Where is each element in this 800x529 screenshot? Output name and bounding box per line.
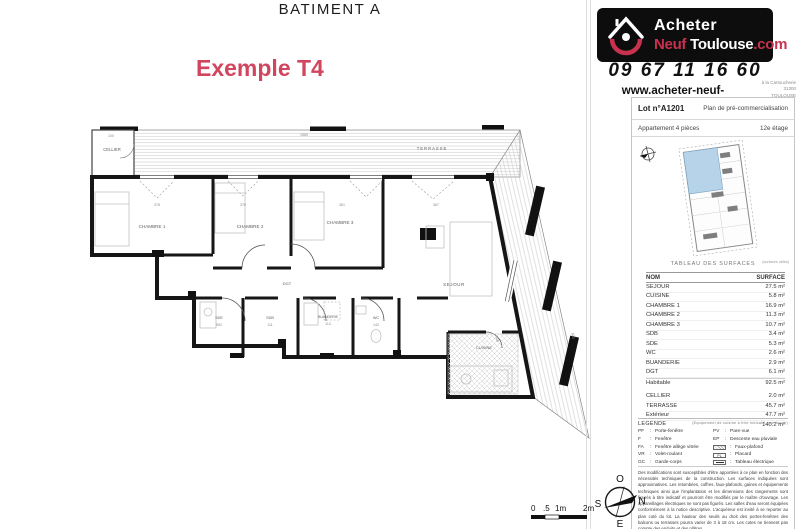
lot-header-row: Lot n°A1201 Plan de pré-commercialisatio…	[632, 98, 794, 120]
phone-number: 09 67 11 16 60	[594, 60, 776, 82]
apartment-type: Appartement 4 pièces	[638, 125, 699, 132]
swatch-electric-icon	[713, 460, 726, 465]
scale-label-1m: 1m	[555, 504, 566, 513]
example-label: Exemple T4	[196, 55, 324, 82]
table-row: CHAMBRE 310.7 m²	[646, 321, 785, 331]
brand-logo: Acheter NeufToulouse.com	[597, 8, 773, 62]
logo-line2: NeufToulouse.com	[654, 36, 787, 53]
compass-rose: O N S E	[591, 473, 649, 529]
legend-item: VR:Volet-roulant	[638, 451, 713, 459]
dim-sde: 552	[216, 323, 222, 327]
floor-plan: CELLIER TERRASSE CHAMBRE 1 CHAMBRE 2 CHA…	[82, 106, 602, 506]
room-label-wc: WC	[373, 316, 380, 320]
dim-sdb: 111	[267, 323, 272, 327]
table-header: NOM SURFACE	[646, 272, 785, 283]
compass-letter-e: E	[617, 519, 624, 529]
exterior-row: CELLIER2.0 m²	[646, 393, 785, 403]
lot-panel: Lot n°A1201 Plan de pré-commercialisatio…	[631, 97, 795, 529]
legend-item: FA:Fenêtre allège vitrée	[638, 444, 713, 452]
dim-cellier-w: 100	[108, 134, 114, 138]
table-row: CHAMBRE 116.9 m²	[646, 302, 785, 312]
compass-letter-s: S	[595, 499, 602, 510]
surface-table: NOM SURFACE SEJOUR27.5 m² CUISINE5.8 m² …	[646, 272, 785, 430]
room-label-buanderie: BUANDERIE	[318, 315, 339, 319]
logo-toulouse-text: Toulouse	[690, 36, 753, 53]
dim-win2: 370	[240, 203, 246, 207]
legend-right-column: PV:Pare-vue EP:Descente eau pluviale :Fa…	[713, 428, 788, 467]
separator-line	[586, 0, 587, 529]
apartment-row: Appartement 4 pièces 12e étage	[632, 120, 794, 137]
scale-label-0: 0	[531, 504, 536, 513]
table-row: CUISINE5.8 m²	[646, 293, 785, 303]
col-name: NOM	[646, 275, 660, 281]
dim-buanderie: 113	[325, 322, 331, 326]
room-label-cellier: CELLIER	[103, 147, 120, 152]
keyplan-lot-highlight	[683, 148, 723, 194]
compass-letter-o: O	[616, 474, 624, 485]
table-row: SDE5.3 m²	[646, 340, 785, 350]
table-row: SDB3.4 m²	[646, 331, 785, 341]
lot-number: Lot n°A1201	[638, 104, 684, 113]
room-label-dgt: DGT	[283, 281, 292, 286]
col-surface: SURFACE	[756, 275, 785, 281]
legend-item: PL:Placard	[713, 451, 788, 459]
dim-win3: 361	[339, 203, 345, 207]
legend-left-column: PF:Porte-fenêtre F:Fenêtre FA:Fenêtre al…	[638, 428, 713, 467]
room-label-sejour: SEJOUR	[443, 282, 465, 287]
surface-table-note: (surfaces utiles)	[762, 260, 789, 264]
room-label-terrasse: TERRASSE	[417, 146, 448, 151]
room-label-cuisine: CUISINE	[476, 345, 493, 350]
separator-line	[590, 0, 591, 529]
legend-title: LEGENDE	[638, 421, 666, 427]
legend-item: F:Fenêtre	[638, 436, 713, 444]
dim-wc: 142	[373, 323, 379, 327]
table-row: WC2.6 m²	[646, 350, 785, 360]
table-row: CHAMBRE 211.3 m²	[646, 312, 785, 322]
legend-columns: PF:Porte-fenêtre F:Fenêtre FA:Fenêtre al…	[638, 428, 788, 467]
room-label-chambre3: CHAMBRE 3	[327, 220, 354, 225]
scale-label-05: .5	[543, 504, 550, 513]
room-label-chambre1: CHAMBRE 1	[139, 224, 166, 229]
logo-com-text: .com	[753, 36, 787, 53]
house-icon	[604, 13, 648, 57]
disclaimer-text: Des modifications sont susceptibles d'êt…	[638, 466, 788, 529]
legend-item: PF:Porte-fenêtre	[638, 428, 713, 436]
subtotal-row: Habitable92.5 m²	[646, 378, 785, 388]
table-row: DGT6.1 m²	[646, 369, 785, 379]
legend-header: LEGENDE (Equipement de cuisine à titre i…	[638, 421, 788, 427]
compass-letter-n: N	[638, 496, 645, 507]
legend-item: EP:Descente eau pluviale	[713, 436, 788, 444]
plan-sheet: BATIMENT A Exemple T4	[0, 0, 800, 529]
table-row: BUANDERIE2.9 m²	[646, 359, 785, 369]
logo-neuf-text: Neuf	[654, 36, 686, 53]
dim-win4: 367	[433, 203, 439, 207]
room-label-chambre2: CHAMBRE 2	[237, 224, 264, 229]
logo-acheter-text: Acheter	[654, 17, 787, 35]
exterior-row: TERRASSE45.7 m²	[646, 402, 785, 412]
room-label-sde: SDE	[215, 316, 223, 320]
legend-note: (Equipement de cuisine à titre indicatif…	[692, 421, 788, 425]
legend: LEGENDE (Equipement de cuisine à titre i…	[638, 418, 788, 467]
swatch-placard-icon: PL	[713, 453, 726, 458]
dim-win1: 378	[154, 203, 160, 207]
floor-label: 12e étage	[760, 125, 788, 132]
legend-item: :Faux-plafond	[713, 444, 788, 452]
legend-item: PV:Pare-vue	[713, 428, 788, 436]
room-label-sdb: SDB	[266, 316, 274, 320]
table-row: SEJOUR27.5 m²	[646, 283, 785, 293]
dim-terrace-len: 1565	[300, 133, 308, 137]
swatch-hatch-icon	[713, 445, 726, 450]
faux-plafond-area	[448, 334, 518, 394]
plan-type-label: Plan de pré-commercialisation	[703, 105, 788, 112]
keyplan-compass-icon	[640, 146, 656, 162]
keyplan-building	[679, 140, 757, 256]
logo-text: Acheter NeufToulouse.com	[654, 17, 787, 53]
keyplan	[632, 138, 794, 258]
page-title: BATIMENT A	[210, 1, 450, 18]
